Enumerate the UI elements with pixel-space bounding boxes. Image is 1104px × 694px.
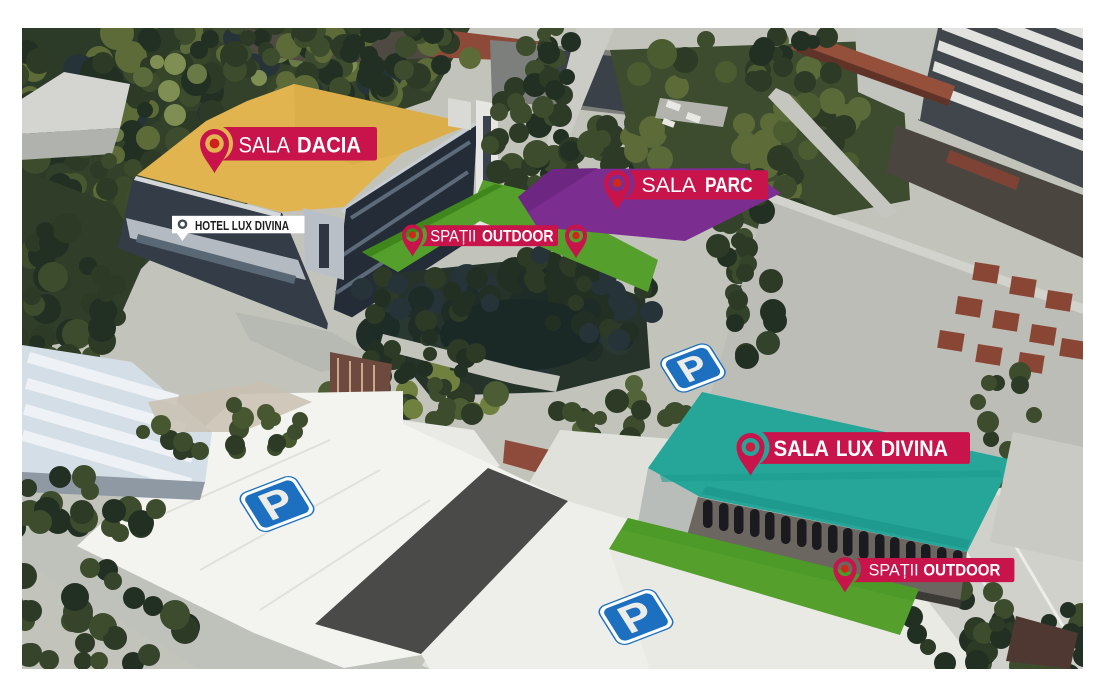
svg-text:SALA: SALA [774, 436, 830, 461]
svg-text:OUTDOOR: OUTDOOR [482, 228, 554, 246]
svg-text:DIVINA: DIVINA [881, 436, 948, 461]
svg-text:DACIA: DACIA [297, 133, 361, 158]
svg-text:SALA: SALA [642, 174, 697, 197]
svg-text:LUX: LUX [836, 436, 874, 461]
svg-text:SPAȚII: SPAȚII [430, 228, 476, 246]
svg-text:OUTDOOR: OUTDOOR [923, 561, 1000, 580]
svg-text:PARC: PARC [705, 174, 753, 197]
svg-text:SALA: SALA [239, 133, 291, 158]
svg-text:SPAȚII: SPAȚII [869, 561, 919, 580]
svg-text:HOTEL LUX DIVINA: HOTEL LUX DIVINA [195, 219, 289, 233]
